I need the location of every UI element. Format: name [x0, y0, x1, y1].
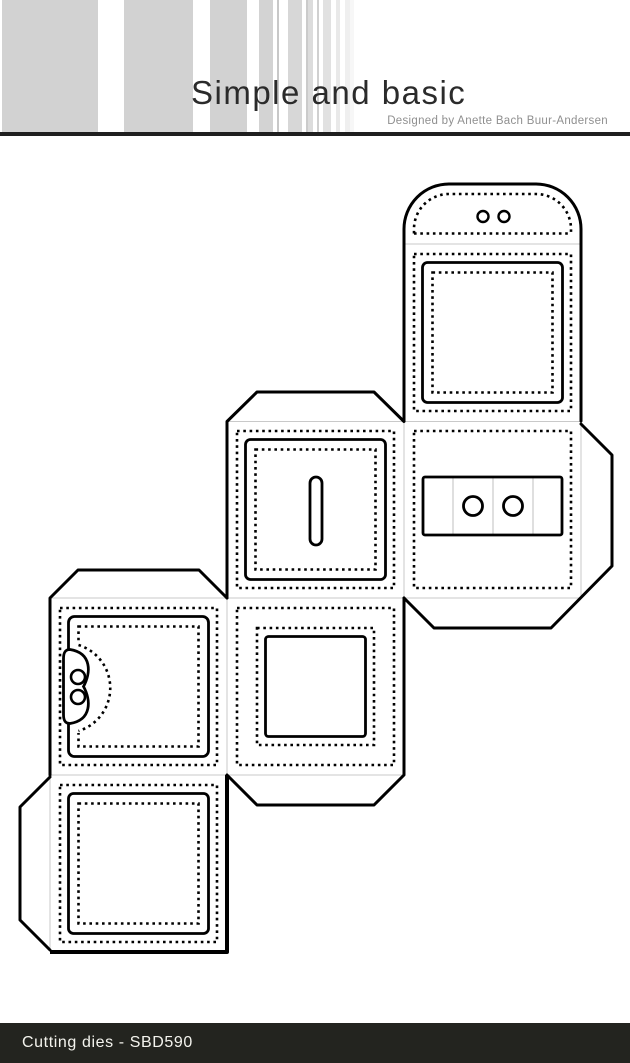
product-sheet: Simple and basic Designed by Anette Bach…	[0, 0, 630, 1063]
stitch-border	[414, 254, 571, 411]
top-panel	[414, 254, 571, 411]
stitch-inner-square	[79, 627, 199, 747]
plate-eyelet-hole	[504, 497, 523, 516]
closure-flap-outline	[404, 184, 581, 421]
stitch-border	[60, 785, 217, 942]
solid-inner-square	[266, 637, 366, 737]
stitch-middle-square	[257, 628, 374, 745]
closure-flap-stitch-arc	[414, 194, 571, 234]
square-frame	[423, 263, 563, 403]
stitch-inner-square	[256, 450, 376, 570]
top-tab-and-left-edge	[227, 392, 404, 598]
stitch-inner-square	[433, 273, 553, 393]
square-frame	[69, 617, 209, 757]
base-panel	[20, 775, 227, 952]
closure-flap	[404, 184, 581, 421]
outer-cut-edge	[50, 775, 227, 952]
lid-panel	[227, 392, 404, 598]
coin-slot	[310, 477, 322, 545]
side-glue-tab	[20, 777, 50, 950]
fold-lines	[50, 244, 581, 950]
stitch-inner-square	[79, 804, 199, 924]
tuck-closure-tab	[64, 650, 89, 724]
stitch-border	[237, 431, 394, 588]
flap-eyelet-hole	[499, 211, 510, 222]
bottom-panel	[227, 598, 404, 805]
footer-bar: Cutting dies - SBD590	[0, 1023, 630, 1063]
square-frame	[69, 794, 209, 934]
front-panel	[50, 570, 227, 775]
die-cut-net-diagram	[0, 0, 630, 1063]
flap-eyelet-hole	[478, 211, 489, 222]
plate-eyelet-hole	[464, 497, 483, 516]
square-frame	[246, 440, 386, 580]
label-plate	[423, 477, 562, 535]
stitch-border	[237, 608, 394, 765]
product-code-label: Cutting dies - SBD590	[22, 1023, 193, 1063]
